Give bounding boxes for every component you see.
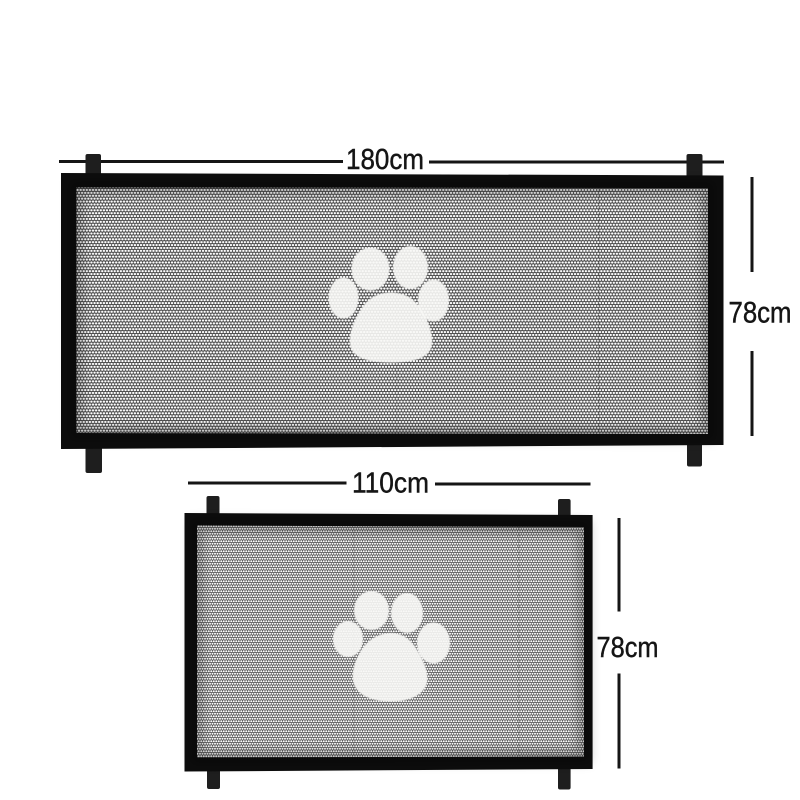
svg-text:78cm: 78cm — [597, 632, 659, 664]
svg-text:110cm: 110cm — [352, 468, 429, 500]
svg-text:78cm: 78cm — [729, 296, 792, 329]
svg-text:180cm: 180cm — [346, 144, 424, 176]
